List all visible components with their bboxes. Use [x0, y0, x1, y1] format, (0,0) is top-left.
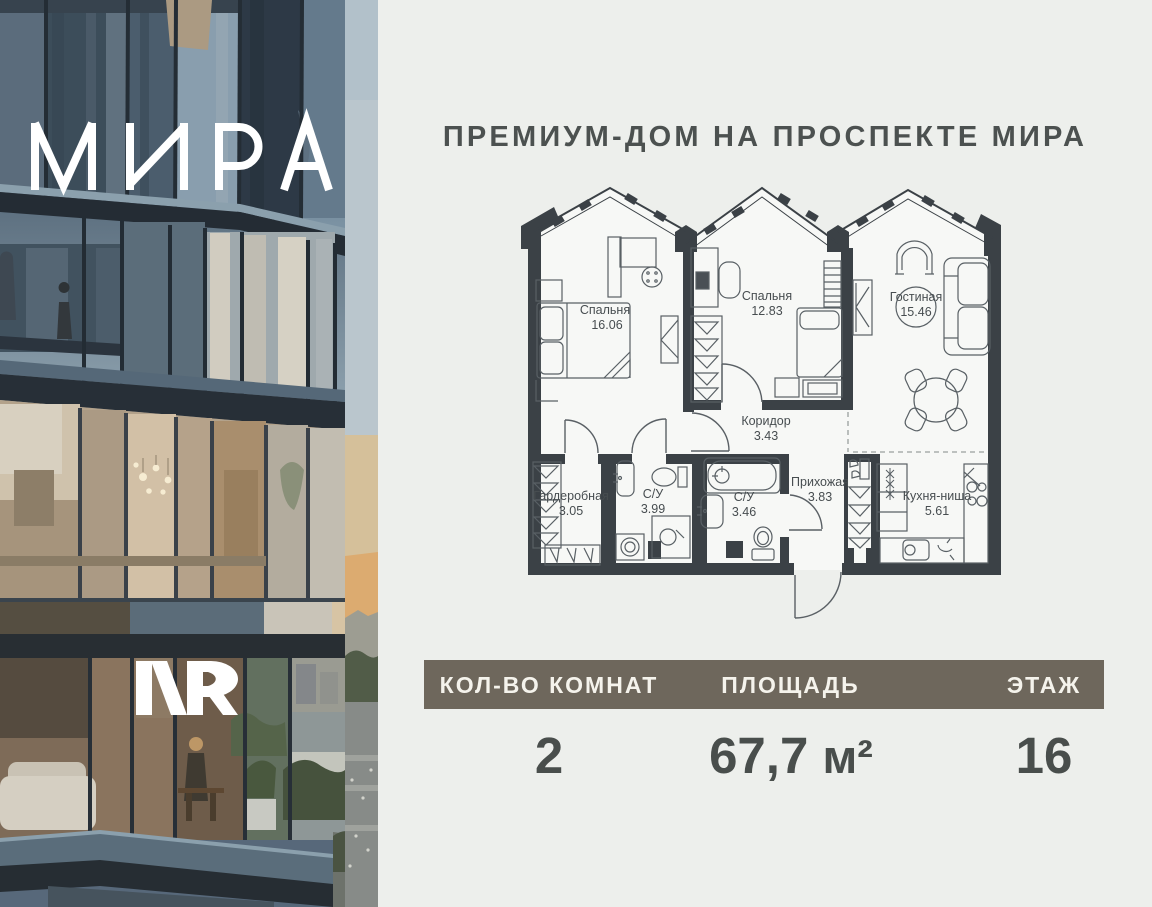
svg-text:12.83: 12.83: [751, 304, 782, 318]
svg-text:Кухня-ниша: Кухня-ниша: [903, 489, 972, 503]
svg-text:3.43: 3.43: [754, 429, 778, 443]
svg-text:Гардеробная: Гардеробная: [533, 489, 609, 503]
svg-text:3.05: 3.05: [559, 504, 583, 518]
svg-text:С/У: С/У: [734, 490, 755, 504]
svg-text:15.46: 15.46: [900, 305, 931, 319]
svg-text:Гостиная: Гостиная: [890, 290, 942, 304]
svg-text:3.83: 3.83: [808, 490, 832, 504]
svg-text:3.99: 3.99: [641, 502, 665, 516]
svg-text:С/У: С/У: [643, 487, 664, 501]
svg-text:3.46: 3.46: [732, 505, 756, 519]
svg-text:5.61: 5.61: [925, 504, 949, 518]
svg-text:Спальня: Спальня: [742, 289, 792, 303]
svg-text:Коридор: Коридор: [741, 414, 790, 428]
svg-text:16.06: 16.06: [591, 318, 622, 332]
svg-text:Прихожая: Прихожая: [791, 475, 849, 489]
svg-text:Спальня: Спальня: [580, 303, 630, 317]
